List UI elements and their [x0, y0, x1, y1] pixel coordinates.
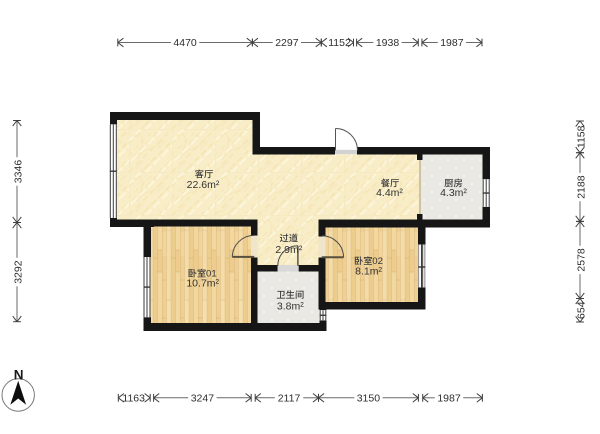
svg-text:22.6m²: 22.6m²	[187, 179, 220, 191]
svg-text:3.8m²: 3.8m²	[277, 301, 304, 313]
svg-text:2.9m²: 2.9m²	[275, 244, 302, 256]
svg-text:1987: 1987	[440, 37, 464, 49]
svg-text:1163: 1163	[122, 393, 145, 405]
svg-text:4.3m²: 4.3m²	[440, 187, 467, 199]
svg-text:10.7m²: 10.7m²	[186, 278, 219, 290]
svg-text:654: 654	[576, 301, 588, 319]
svg-text:8.1m²: 8.1m²	[355, 266, 382, 278]
svg-text:2297: 2297	[275, 37, 299, 49]
svg-text:3150: 3150	[357, 393, 381, 405]
svg-text:2117: 2117	[278, 393, 301, 405]
svg-text:1158: 1158	[576, 125, 588, 148]
svg-text:3292: 3292	[13, 260, 25, 284]
svg-text:1152: 1152	[328, 37, 351, 49]
svg-text:2578: 2578	[576, 248, 588, 272]
svg-text:3247: 3247	[191, 393, 215, 405]
svg-text:1987: 1987	[437, 393, 461, 405]
svg-text:4.4m²: 4.4m²	[376, 187, 403, 199]
svg-text:1938: 1938	[376, 37, 400, 49]
svg-text:N: N	[14, 367, 24, 382]
svg-text:3346: 3346	[13, 160, 25, 184]
svg-text:2188: 2188	[576, 175, 588, 199]
svg-text:4470: 4470	[173, 37, 197, 49]
